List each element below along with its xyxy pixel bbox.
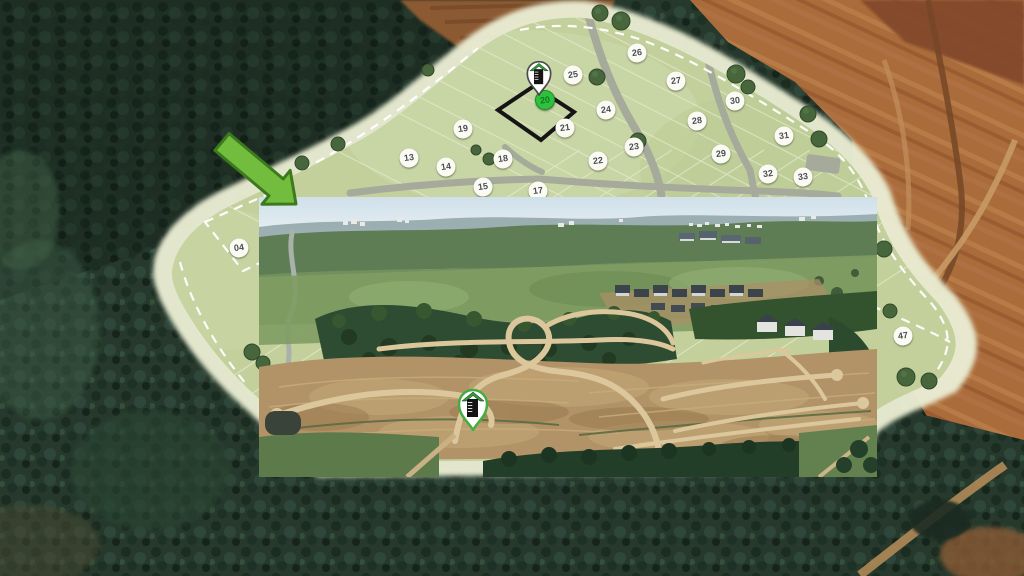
composite-map-image: 0413141517181921222324252627282930313233… <box>0 0 1024 576</box>
location-pin-icon <box>455 387 491 431</box>
pond <box>265 411 301 435</box>
green-arrow-icon <box>200 120 310 220</box>
inset-aerial-photo <box>259 197 877 477</box>
location-pin-icon <box>524 59 554 96</box>
